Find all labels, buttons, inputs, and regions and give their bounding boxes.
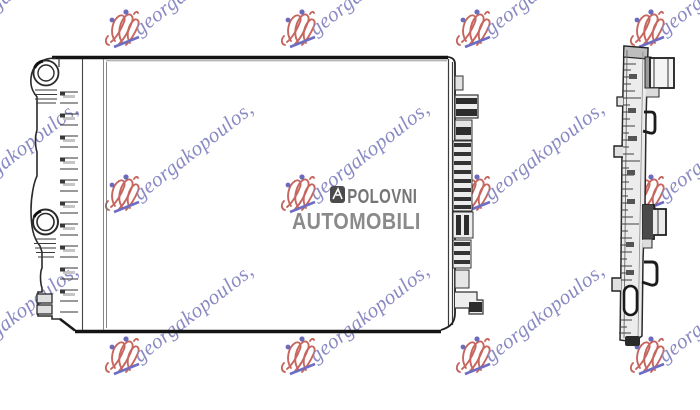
svg-text:POLOVNI: POLOVNI <box>347 185 417 208</box>
svg-text:AUTOMOBILI: AUTOMOBILI <box>292 207 421 234</box>
